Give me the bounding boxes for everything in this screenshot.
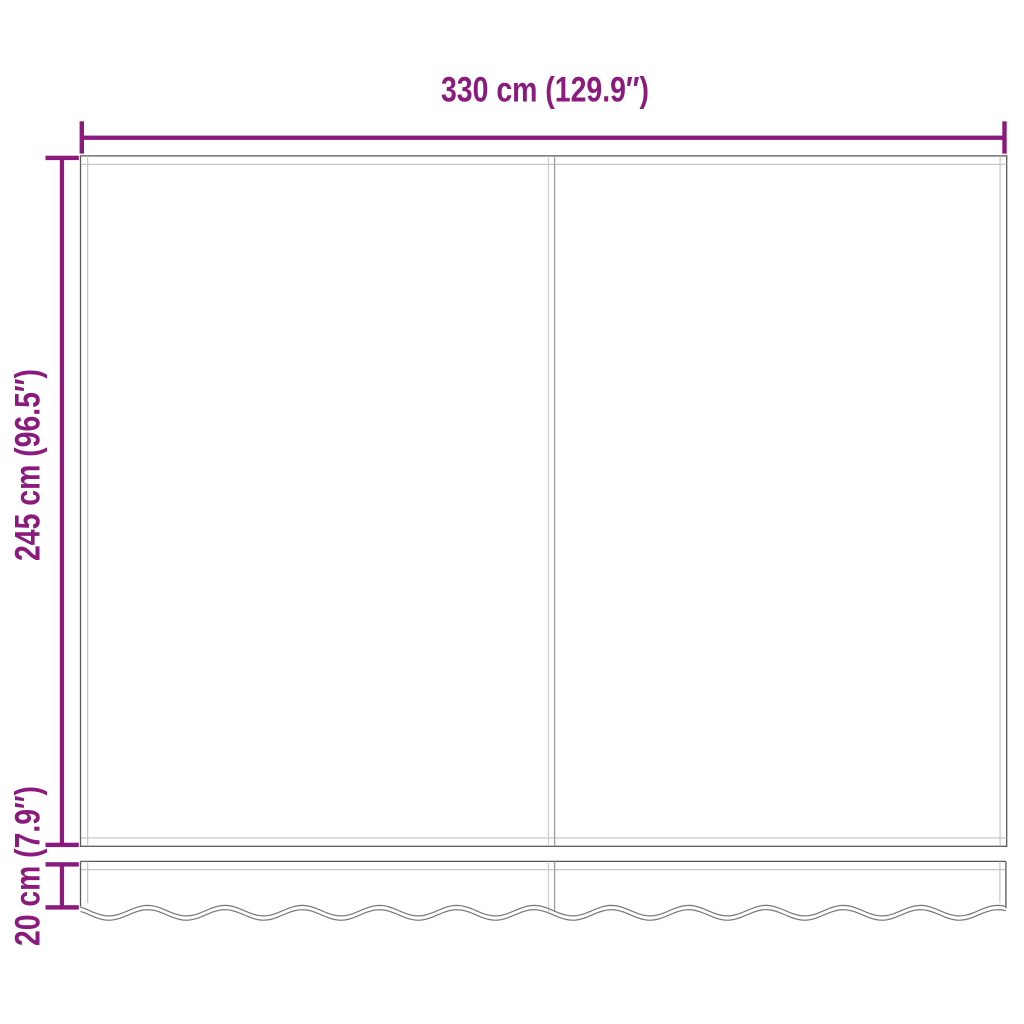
svg-text:330 cm (129.9″): 330 cm (129.9″): [441, 70, 649, 110]
svg-text:245 cm (96.5″): 245 cm (96.5″): [8, 369, 48, 561]
svg-text:20 cm (7.9″): 20 cm (7.9″): [8, 786, 48, 946]
